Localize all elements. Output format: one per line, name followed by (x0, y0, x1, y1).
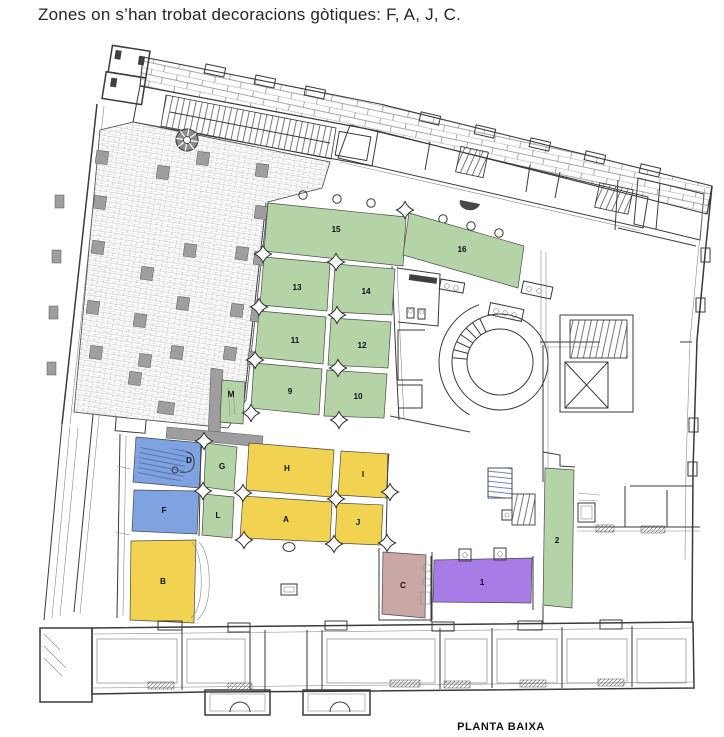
floor-plan: 151613141112910MGLHIAJDFBC12 PLANTA BAIX… (0, 0, 724, 737)
zone-label-9: 9 (288, 387, 293, 396)
zone-label-15: 15 (331, 225, 341, 234)
zone-label-F: F (161, 506, 166, 515)
zone-M (220, 380, 245, 424)
window-recesses (148, 679, 624, 690)
north-hall-stair (456, 146, 489, 177)
zone-label-M: M (228, 390, 235, 399)
zone-label-11: 11 (291, 336, 300, 345)
zone-label-10: 10 (353, 392, 363, 401)
zone-H (246, 443, 334, 497)
zone-label-12: 12 (357, 341, 367, 350)
zone2-side-rooms (578, 493, 600, 522)
zone-label-14: 14 (361, 287, 371, 296)
zone-label-A: A (283, 515, 289, 524)
apse-niche (460, 200, 480, 210)
south-stair (488, 468, 535, 525)
south-porches (205, 690, 370, 715)
zone-label-16: 16 (457, 245, 467, 254)
stair-elevator-core (560, 315, 633, 412)
zone-D-ramp (138, 446, 187, 481)
circular-staircase (439, 305, 548, 415)
south-wing-rooms (97, 639, 686, 683)
zone-label-L: L (215, 511, 220, 520)
zone1-niche (494, 548, 506, 560)
zone-label-13: 13 (292, 283, 302, 292)
south-wing (40, 620, 694, 715)
tiny-label-bar (409, 274, 438, 284)
zone-label-1: 1 (480, 578, 485, 587)
zone-label-2: 2 (555, 536, 560, 545)
center-core (390, 265, 553, 525)
zone-label-G: G (219, 462, 225, 471)
zone-label-C: C (400, 581, 406, 590)
zone-9 (251, 363, 322, 415)
sanitary-fixtures (407, 279, 553, 321)
facade-pedestals (158, 620, 622, 632)
plan-caption: PLANTA BAIXA (457, 721, 545, 733)
zone-label-I: I (362, 470, 364, 479)
zone-label-J: J (356, 518, 361, 527)
courtyard-base (281, 584, 297, 595)
page: Zones on s’han trobat decoracions gòtiqu… (0, 0, 724, 737)
zone-label-D: D (186, 456, 192, 465)
zone-label-H: H (284, 464, 290, 473)
zone-label-B: B (160, 577, 166, 586)
